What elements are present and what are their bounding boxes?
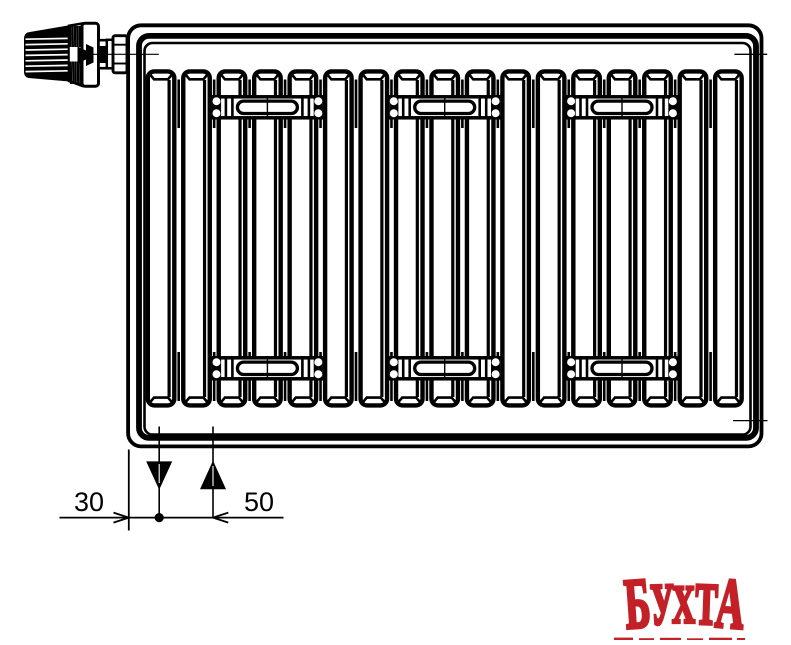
svg-text:А: А [713, 562, 748, 640]
svg-text:Б: Б [622, 564, 653, 640]
svg-text:Х: Х [672, 575, 695, 634]
svg-text:50: 50 [244, 487, 274, 517]
svg-text:30: 30 [74, 487, 104, 517]
